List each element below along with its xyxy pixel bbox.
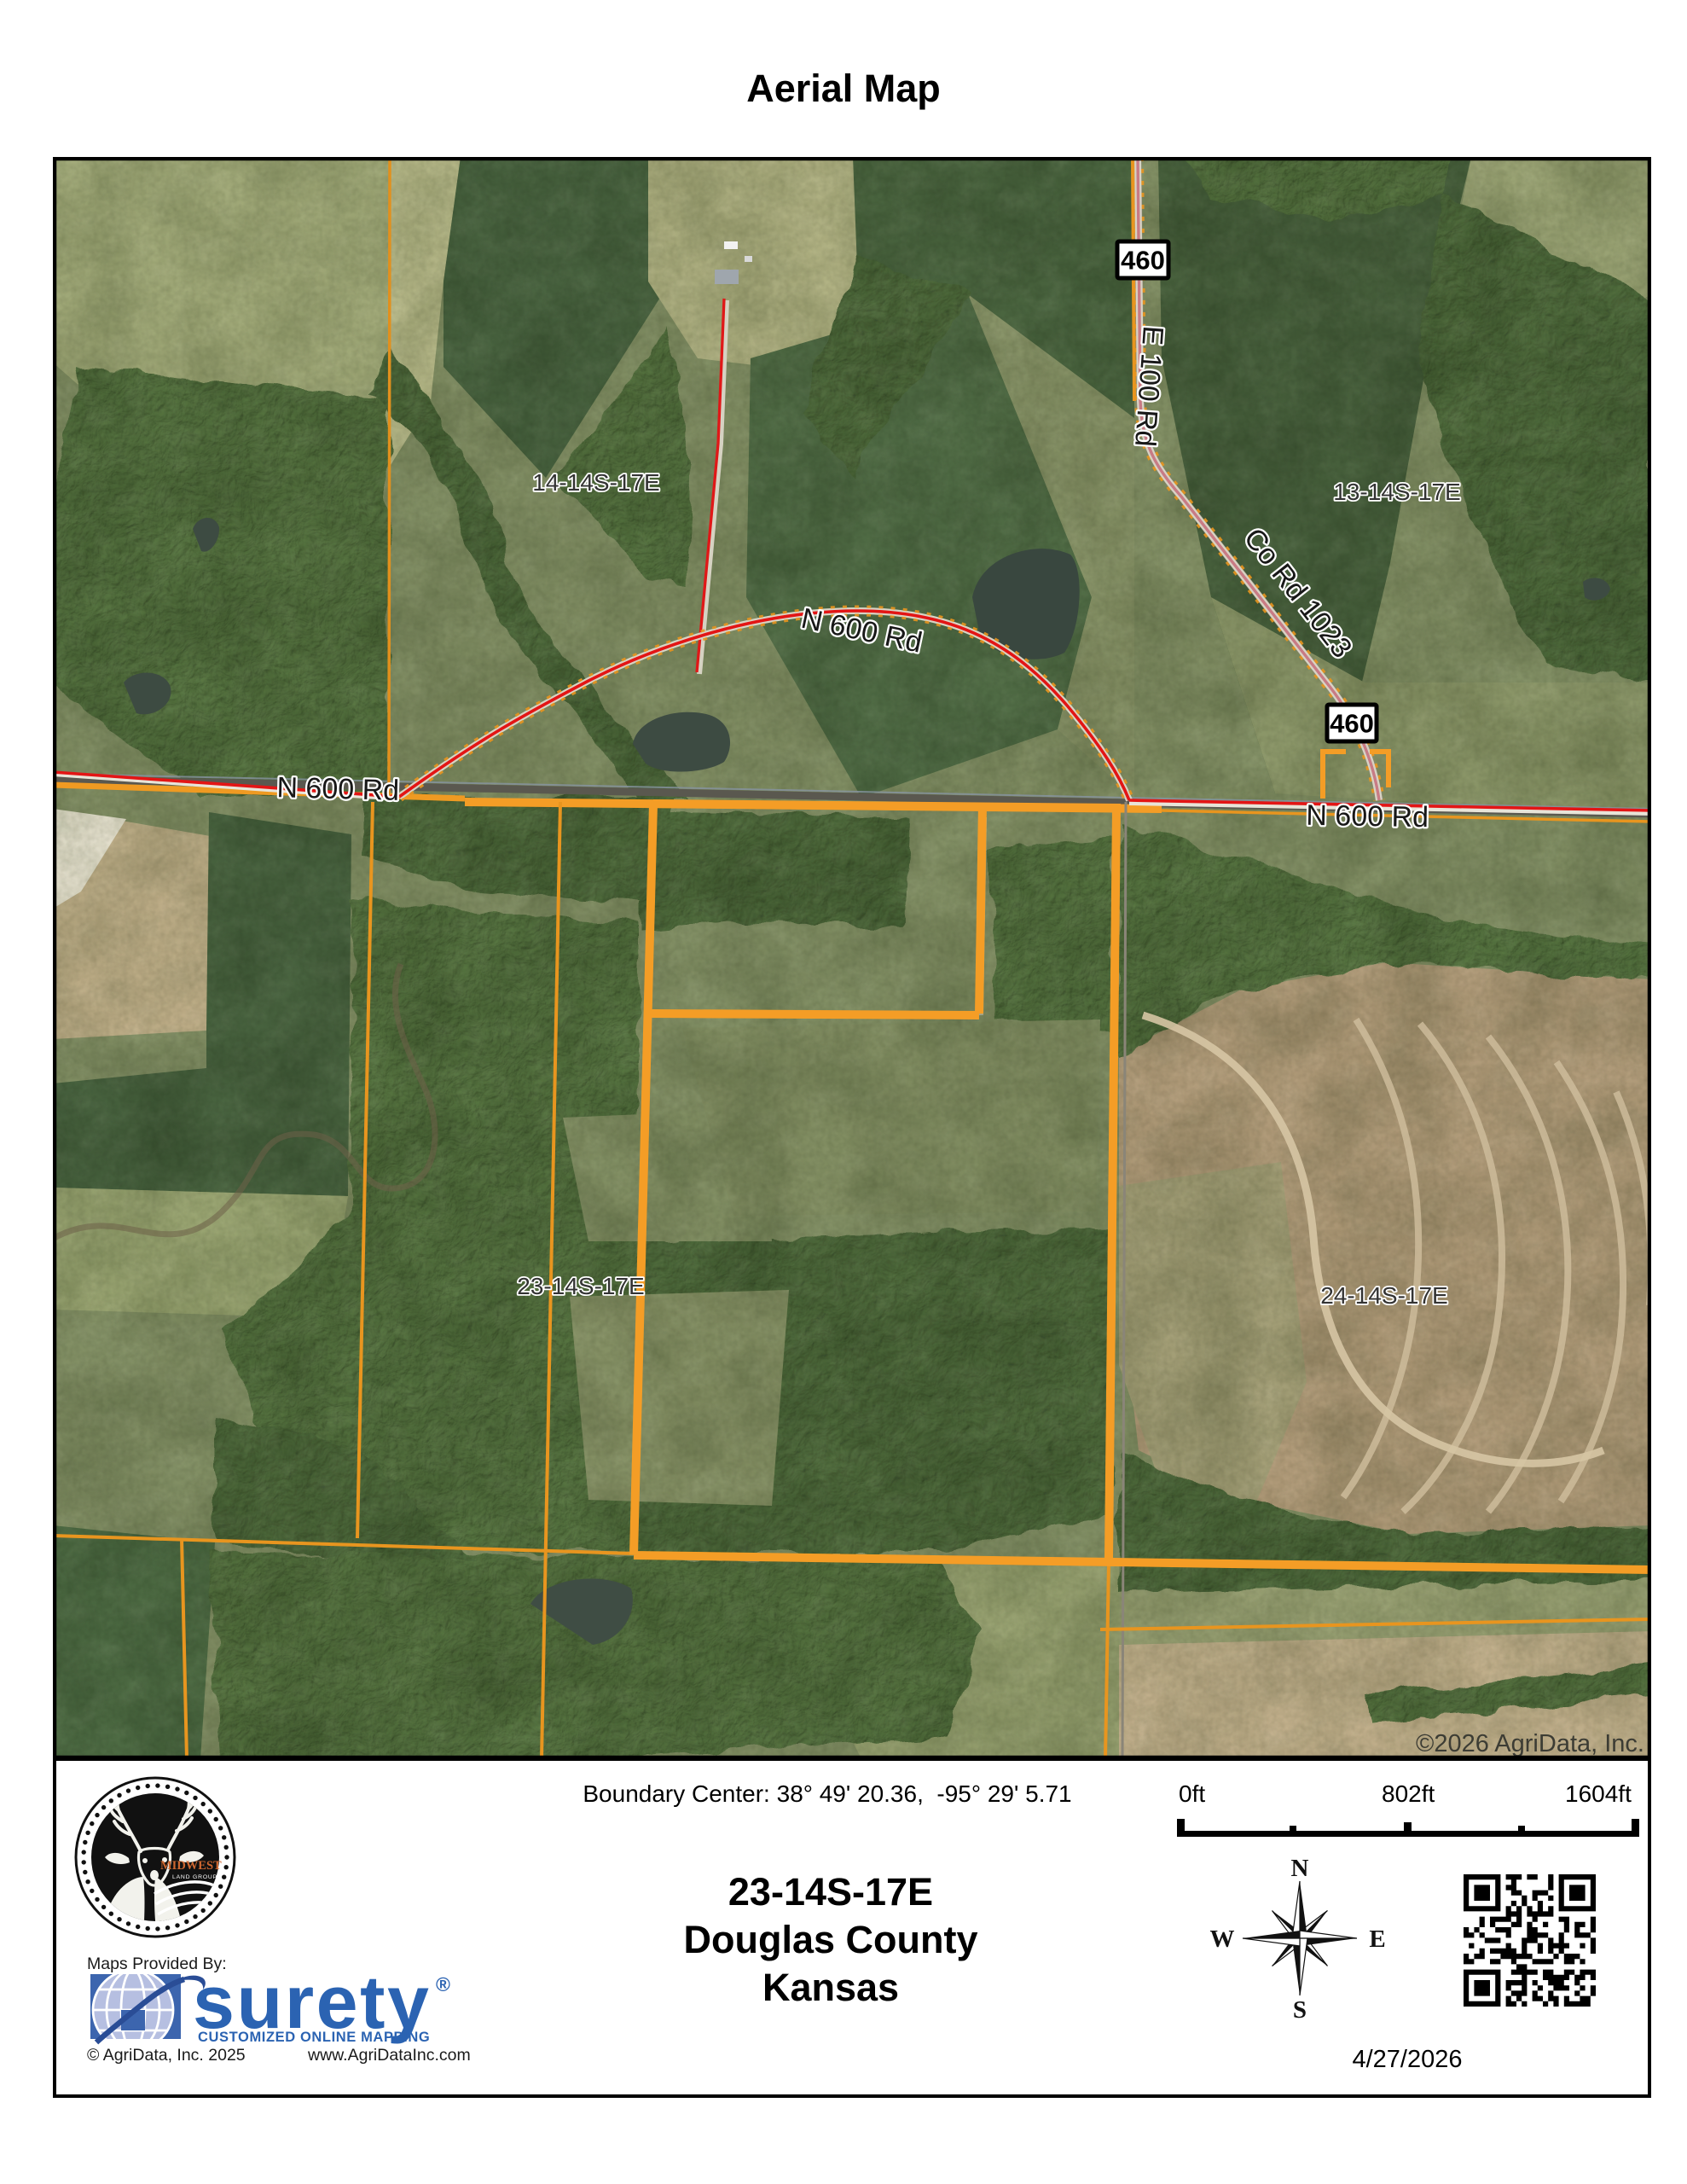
svg-text:14-14S-17E: 14-14S-17E <box>532 469 659 496</box>
svg-text:®: ® <box>436 1973 450 1995</box>
svg-text:LAND GROUP: LAND GROUP <box>172 1874 217 1880</box>
svg-text:460: 460 <box>1330 709 1374 739</box>
svg-text:W: W <box>1210 1926 1235 1953</box>
svg-text:N: N <box>1291 1855 1309 1882</box>
svg-text:E: E <box>1369 1926 1385 1953</box>
svg-text:N 600 Rd: N 600 Rd <box>1306 799 1429 834</box>
svg-text:CUSTOMIZED ONLINE MAPPING: CUSTOMIZED ONLINE MAPPING <box>198 2030 430 2045</box>
svg-text:24-14S-17E: 24-14S-17E <box>1320 1282 1447 1309</box>
svg-text:13-14S-17E: 13-14S-17E <box>1333 479 1460 505</box>
svg-text:460: 460 <box>1121 246 1165 276</box>
svg-text:©2026 AgriData, Inc.: ©2026 AgriData, Inc. <box>1416 1730 1644 1757</box>
svg-text:S: S <box>1293 1996 1307 2024</box>
svg-text:MIDWEST: MIDWEST <box>160 1859 222 1873</box>
svg-text:N 600 Rd: N 600 Rd <box>276 771 400 807</box>
svg-text:23-14S-17E: 23-14S-17E <box>517 1273 644 1299</box>
